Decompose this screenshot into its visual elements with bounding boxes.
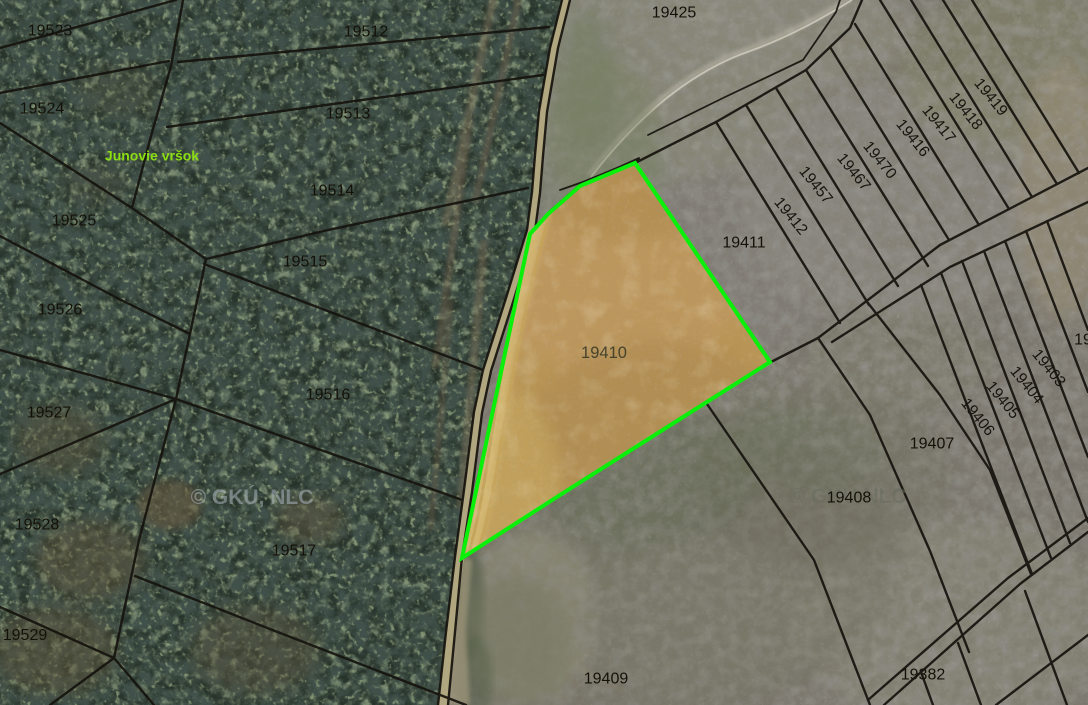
svg-text:19411: 19411: [722, 235, 765, 252]
svg-text:19514: 19514: [310, 183, 355, 200]
svg-text:19407: 19407: [910, 436, 955, 453]
svg-text:19525: 19525: [52, 213, 97, 230]
svg-text:19382: 19382: [901, 667, 946, 684]
svg-text:19513: 19513: [326, 106, 371, 123]
svg-text:19410: 19410: [581, 344, 627, 362]
svg-text:19512: 19512: [344, 24, 389, 41]
svg-text:19524: 19524: [20, 101, 65, 118]
svg-text:Junovie vršok: Junovie vršok: [105, 148, 199, 164]
svg-text:19: 19: [1074, 332, 1088, 349]
svg-text:19408: 19408: [827, 490, 872, 507]
svg-text:© GKÚ, NLC: © GKÚ, NLC: [191, 485, 314, 509]
svg-text:19528: 19528: [15, 517, 60, 534]
svg-text:19529: 19529: [3, 627, 48, 644]
svg-text:19515: 19515: [283, 254, 328, 271]
svg-text:19409: 19409: [584, 671, 629, 688]
svg-text:19517: 19517: [272, 543, 317, 560]
svg-text:19523: 19523: [28, 23, 73, 40]
svg-text:19526: 19526: [38, 302, 83, 319]
svg-text:19425: 19425: [652, 5, 697, 22]
svg-text:19527: 19527: [27, 405, 72, 422]
svg-text:19516: 19516: [306, 387, 351, 404]
